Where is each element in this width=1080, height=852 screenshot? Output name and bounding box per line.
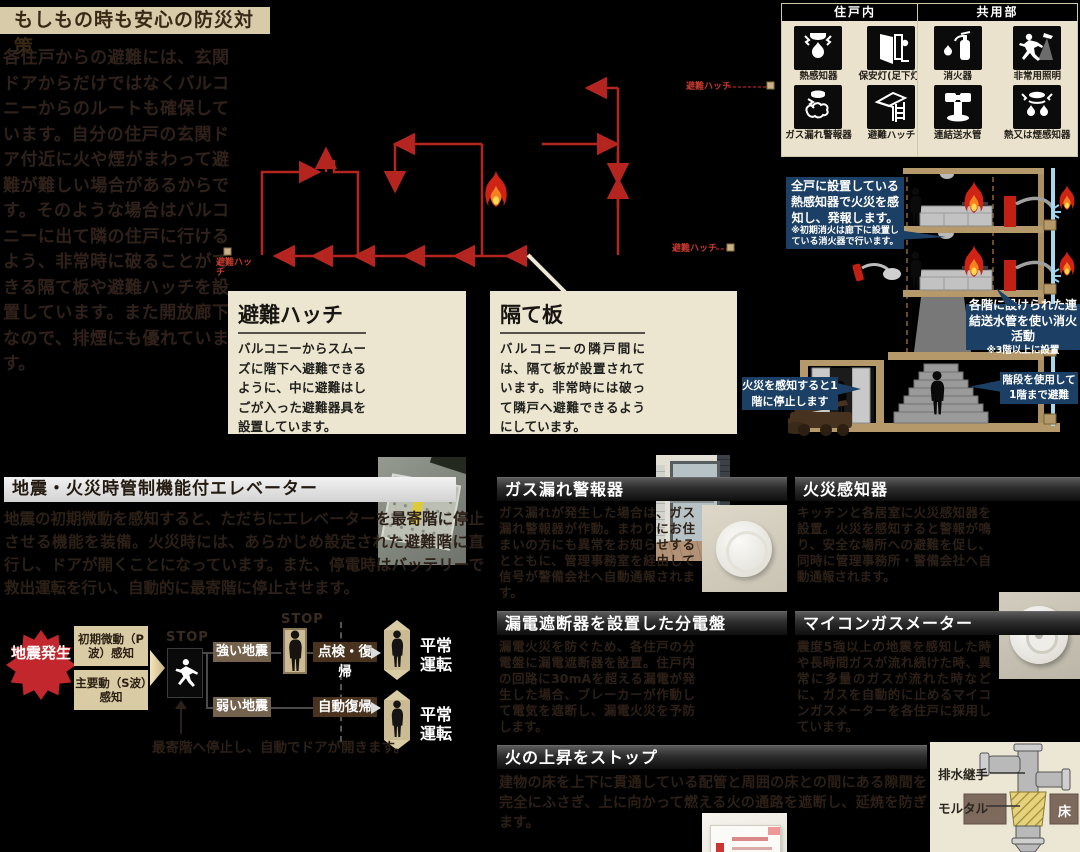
- gas-alarm-icon: [794, 85, 842, 129]
- equipment-item: 消火器: [920, 24, 996, 82]
- earthquake-burst: [6, 630, 76, 700]
- hatch-box-body: バルコニーからスムーズに階下へ避難できるように、中に避難はしごが入った避難器具を…: [238, 339, 366, 437]
- elevator-section-body: 地震の初期微動を感知すると、ただちにエレベーターを最寄階に停止させる機能を装備。…: [4, 508, 484, 600]
- equipment-item: 連結送水管: [920, 83, 996, 141]
- equipment-panel-in-unit: 住戸内 熱感知器: [781, 3, 929, 157]
- callout-elevator-stop: 火災を感知すると1階に停止します: [742, 377, 838, 410]
- callout-standpipe: 各階に設けられた連結送水管を使い消火活動 ※3階以上に設置: [966, 304, 1080, 350]
- floorplan-evacuation-diagram: [218, 40, 775, 295]
- inspect-return-box: 点検・復帰: [313, 642, 377, 662]
- stop-label: STOP: [281, 612, 324, 627]
- fire-stop-section-body: 建物の床を上下に貫通している配管と周囲の床との間にある隙間を完全にふさぎ、上に向…: [499, 773, 927, 833]
- floorplan-hatch-label: 避難ハッチ: [216, 258, 256, 278]
- gas-meter-section-body: 震度5強以上の地震を感知した時や長時間ガスが流れ続けた時、異常に多量のガスが流れ…: [797, 639, 991, 735]
- elevator-flow-diagram: 地震発生 初期微動（P波）感知 主要動（S波）感知 STOP 強い地震 弱い地震…: [0, 610, 495, 760]
- fire-detector-section-title: 火災感知器: [795, 477, 1080, 501]
- flow-note-arrow: [180, 706, 182, 734]
- flow-arrow-beige: [150, 650, 165, 686]
- callout-stairs: 階段を使用して1階まで避難: [1000, 372, 1078, 404]
- breaker-section-body: 漏電火災を防ぐため、各住戸の分電盤に漏電遮断器を設置。住戸内の回路に30mAを超…: [499, 639, 695, 735]
- flow-note-arrow-head: [175, 700, 187, 709]
- equipment-panel-in-unit-title: 住戸内: [782, 4, 928, 21]
- earthquake-burst-label: 地震発生: [10, 644, 72, 663]
- intro-paragraph: 各住戸からの避難には、玄関ドアからだけではなくバルコニーからのルートも確保してい…: [3, 46, 229, 378]
- callout-heat-detector: 全戸に設置している熱感知器で火災を感知し、発報します。 ※初期消火は廊下に設置し…: [786, 177, 904, 249]
- equipment-item: 熱又は煙感知器: [999, 83, 1075, 141]
- floorplan-hatch-label: 避難ハッチ: [686, 82, 731, 92]
- safety-light-icon: [867, 26, 915, 70]
- p-wave-box: 初期微動（P波）感知: [74, 626, 148, 666]
- fire-extinguisher-icon: [934, 26, 982, 70]
- emergency-light-icon: [1013, 26, 1061, 70]
- floor-label: 床: [1058, 801, 1071, 820]
- mortar-label: モルタル: [938, 798, 988, 817]
- drain-pipe-diagram: 排水継手 モルタル 床: [930, 742, 1080, 852]
- fire-detector-section-body: キッチンと各居室に火災感知器を設置。火災を感知すると警報が鳴り、安全な場所への避…: [797, 505, 991, 585]
- gas-alarm-photo: [702, 505, 787, 592]
- heat-smoke-detector-icon: [1013, 85, 1061, 129]
- fire-detector-photo: [999, 592, 1080, 679]
- fire-stop-section-title: 火の上昇をストップ: [497, 745, 927, 769]
- equipment-item: 非常用照明: [999, 24, 1075, 82]
- stop-label: STOP: [166, 630, 209, 645]
- stopped-elevator-icon: [283, 628, 307, 674]
- elevator-door-stop-icon: [167, 648, 203, 698]
- strong-quake-box: 強い地震: [213, 642, 271, 662]
- normal-elevator-icon: [384, 620, 410, 680]
- s-wave-box: 主要動（S波）感知: [74, 670, 148, 710]
- equipment-panel-common: 共用部 消火器: [917, 3, 1078, 157]
- hatch-info-box: 避難ハッチ バルコニーからスムーズに階下へ避難できるように、中に避難はしごが入っ…: [228, 291, 466, 434]
- partition-info-box: 隔て板 バルコニーの隣戸間には、隔て板が設置されています。非常時には破って隣戸へ…: [490, 291, 737, 434]
- brochure-page: もしもの時も安心の防災対策 各住戸からの避難には、玄関ドアからだけではなくバルコ…: [0, 0, 1080, 852]
- page-title: もしもの時も安心の防災対策: [0, 7, 270, 34]
- breaker-section-title: 漏電遮断器を設置した分電盤: [497, 611, 787, 635]
- weak-quake-box: 弱い地震: [213, 697, 271, 717]
- equipment-panel-common-title: 共用部: [918, 4, 1077, 21]
- pipe-joint-label: 排水継手: [938, 764, 988, 783]
- hatch-box-title: 避難ハッチ: [238, 299, 366, 334]
- evacuation-hatch-icon: [867, 85, 915, 129]
- equipment-item: ガス漏れ警報器: [783, 83, 853, 141]
- gas-alarm-section-body: ガス漏れが発生した場合は、ガス漏れ警報器が作動。まわりにお住まいの方にも異常をお…: [499, 505, 695, 601]
- gas-alarm-section-title: ガス漏れ警報器: [497, 477, 787, 501]
- partition-box-body: バルコニーの隣戸間には、隔て板が設置されています。非常時には破って隣戸へ避難でき…: [500, 339, 645, 437]
- heat-detector-icon: [794, 26, 842, 70]
- normal-operation-label: 平常運転: [418, 636, 454, 674]
- standpipe-icon: [934, 85, 982, 129]
- partition-box-title: 隔て板: [500, 299, 645, 334]
- flow-note: 最寄階へ停止し、自動でドアが開きます。: [152, 736, 442, 756]
- equipment-item: 熱感知器: [783, 24, 853, 82]
- gas-meter-section-title: マイコンガスメーター: [795, 611, 1080, 635]
- auto-return-box: 自動復帰: [313, 697, 377, 717]
- elevator-section-title: 地震・火災時管制機能付エレベーター: [4, 477, 456, 502]
- floorplan-hatch-label: 避難ハッチ: [672, 244, 717, 254]
